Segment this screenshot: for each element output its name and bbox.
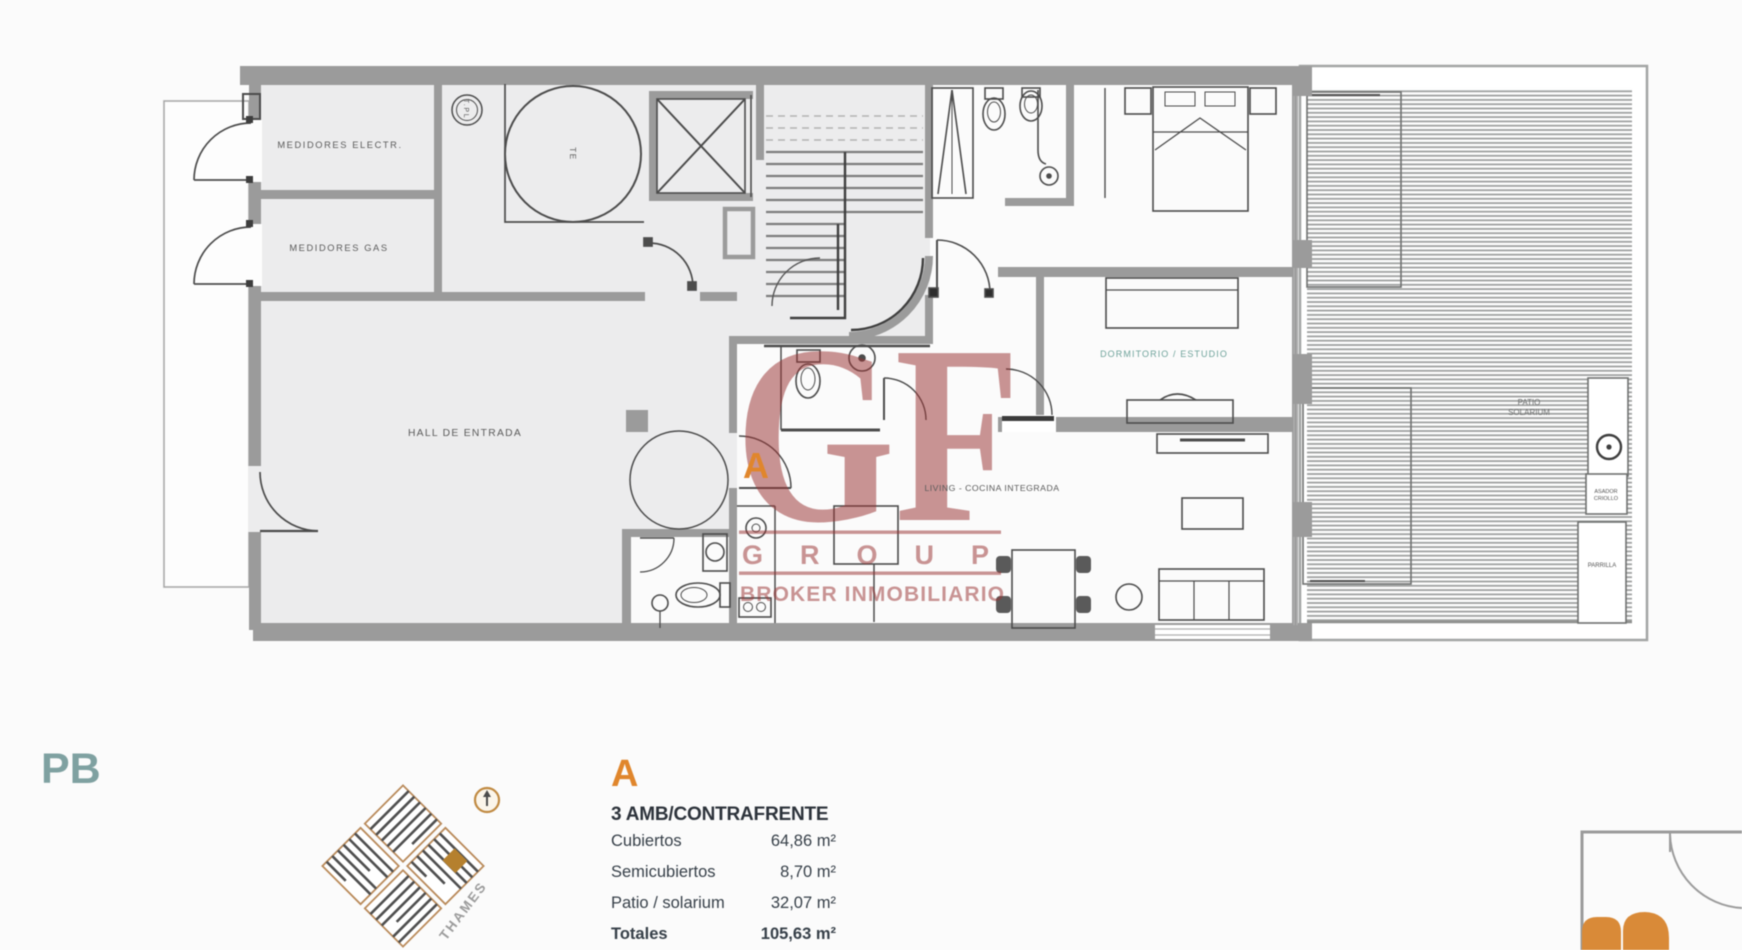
- svg-text:DORMITORIO / ESTUDIO: DORMITORIO / ESTUDIO: [1100, 349, 1228, 359]
- svg-text:8,70 m²: 8,70 m²: [780, 863, 836, 881]
- svg-text:A: A: [611, 753, 638, 795]
- svg-text:MEDIDORES ELECTR.: MEDIDORES ELECTR.: [277, 140, 402, 150]
- svg-text:Semicubiertos: Semicubiertos: [611, 863, 716, 881]
- svg-text:Cubiertos: Cubiertos: [611, 832, 682, 850]
- svg-text:Patio / solarium: Patio / solarium: [611, 894, 725, 912]
- svg-text:3 AMB/CONTRAFRENTE: 3 AMB/CONTRAFRENTE: [611, 804, 828, 825]
- svg-text:105,63 m²: 105,63 m²: [761, 925, 837, 943]
- svg-text:Totales: Totales: [611, 925, 668, 943]
- svg-text:ASADOR: ASADOR: [1594, 489, 1617, 495]
- svg-text:PARRILLA: PARRILLA: [1588, 563, 1617, 569]
- svg-text:PB: PB: [41, 745, 101, 793]
- svg-text:MEDIDORES GAS: MEDIDORES GAS: [289, 243, 388, 253]
- svg-text:T.PL: T.PL: [462, 99, 469, 119]
- svg-text:64,86 m²: 64,86 m²: [771, 832, 837, 850]
- svg-text:LIVING - COCINA INTEGRADA: LIVING - COCINA INTEGRADA: [924, 483, 1059, 493]
- svg-text:A: A: [743, 445, 771, 486]
- svg-text:CRIOLLO: CRIOLLO: [1594, 496, 1619, 502]
- svg-text:SOLARIUM: SOLARIUM: [1508, 408, 1550, 417]
- svg-text:BROKER INMOBILIARIO: BROKER INMOBILIARIO: [740, 583, 1004, 606]
- svg-text:TE: TE: [568, 147, 577, 160]
- svg-text:PATIO: PATIO: [1518, 398, 1541, 407]
- svg-text:HALL DE ENTRADA: HALL DE ENTRADA: [408, 428, 522, 439]
- svg-text:32,07 m²: 32,07 m²: [771, 894, 837, 912]
